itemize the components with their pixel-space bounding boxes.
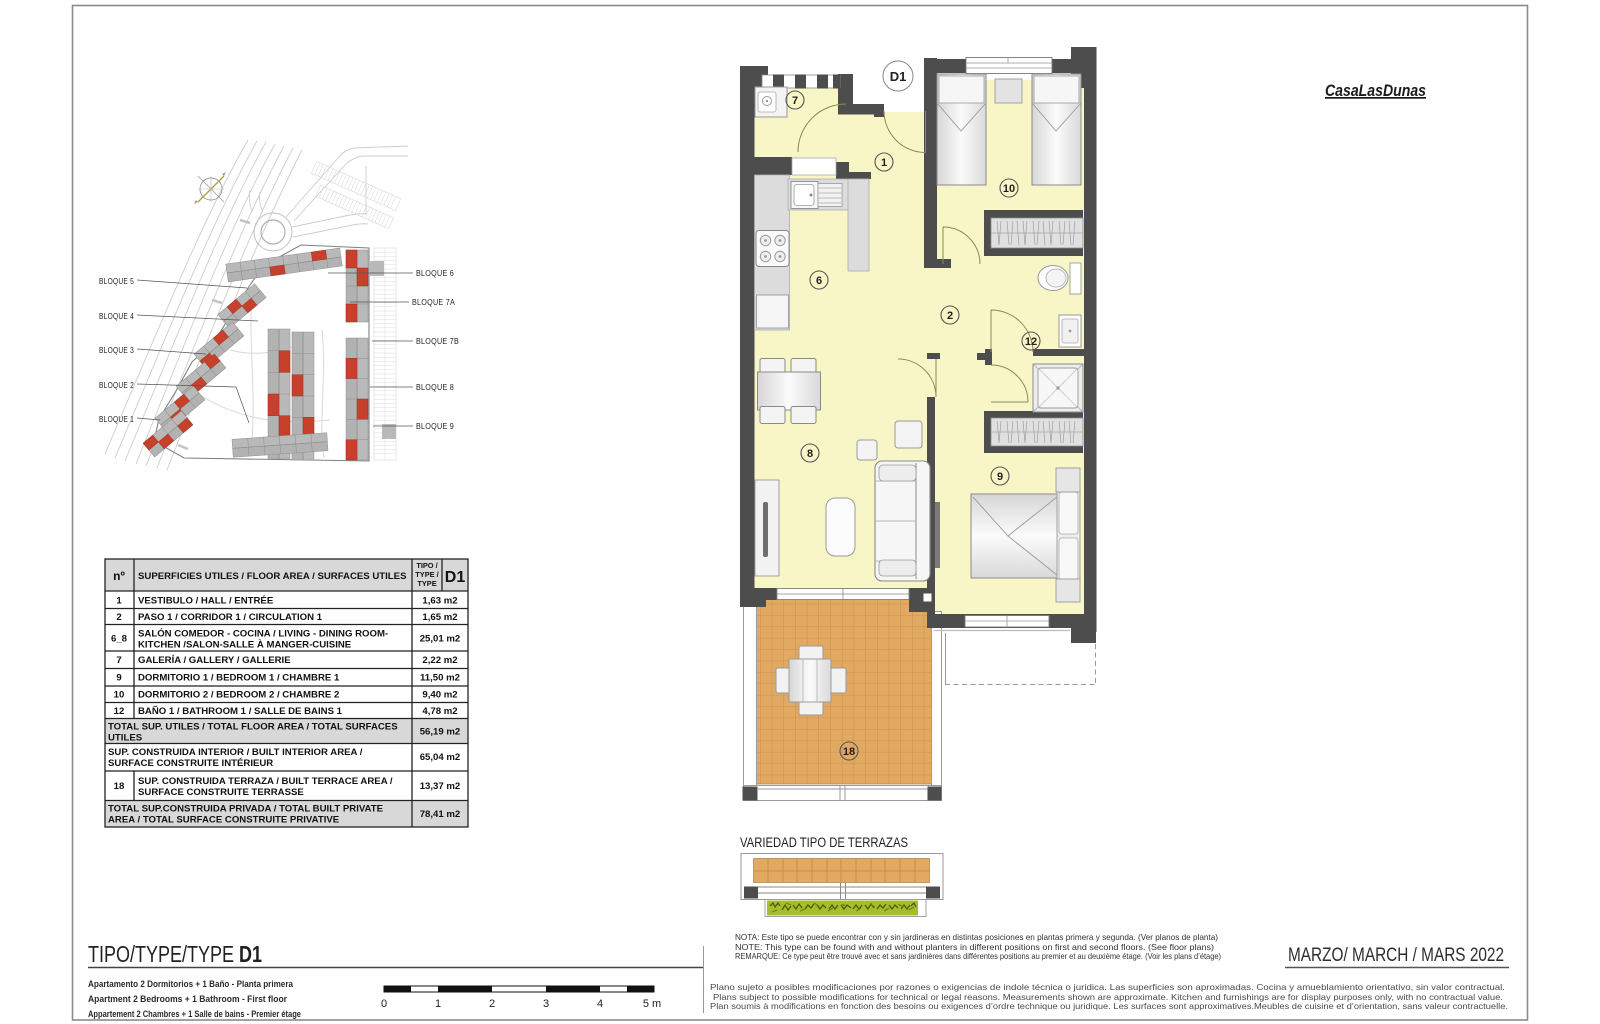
svg-text:GALERÍA / GALLERY / GALLERIE: GALERÍA / GALLERY / GALLERIE [138,654,291,666]
svg-text:5 m: 5 m [643,998,661,1010]
svg-text:SUP. CONSTRUIDA INTERIOR / BUI: SUP. CONSTRUIDA INTERIOR / BUILT INTERIO… [108,747,363,758]
svg-text:10: 10 [114,690,125,701]
svg-text:7: 7 [792,95,798,107]
svg-text:VARIEDAD TIPO DE TERRAZAS: VARIEDAD TIPO DE TERRAZAS [740,835,908,850]
svg-text:TOTAL SUP.CONSTRUIDA PRIVADA /: TOTAL SUP.CONSTRUIDA PRIVADA / TOTAL BUI… [108,804,384,815]
svg-text:BLOQUE 4: BLOQUE 4 [99,311,134,321]
svg-text:BLOQUE 7A: BLOQUE 7A [412,297,455,307]
svg-text:BLOQUE 7B: BLOQUE 7B [416,336,459,346]
svg-text:DORMITORIO 1 / BEDROOM 1 / CHA: DORMITORIO 1 / BEDROOM 1 / CHAMBRE 1 [138,673,340,684]
svg-text:9,40 m2: 9,40 m2 [422,690,457,701]
svg-text:1,65 m2: 1,65 m2 [422,612,457,623]
svg-text:TIPO/TYPE/TYPE D1: TIPO/TYPE/TYPE D1 [88,941,262,967]
svg-text:Plans subject to possible modi: Plans subject to possible modifications … [713,993,1503,1002]
svg-text:Plan soumis à modifications en: Plan soumis à modifications en fonction … [710,1002,1508,1011]
svg-text:BLOQUE 9: BLOQUE 9 [416,421,454,431]
svg-text:4: 4 [597,998,603,1010]
svg-text:1: 1 [435,998,441,1010]
svg-text:MARZO/ MARCH / MARS 2022: MARZO/ MARCH / MARS 2022 [1288,945,1504,966]
svg-text:11,50 m2: 11,50 m2 [420,673,460,684]
svg-text:8: 8 [807,448,813,460]
svg-text:SURFACE CONSTRUITE TERRASSE: SURFACE CONSTRUITE TERRASSE [138,787,304,798]
svg-text:SUPERFICIES UTILES / FLOOR ARE: SUPERFICIES UTILES / FLOOR AREA / SURFAC… [138,571,407,582]
svg-text:KITCHEN /SALON-SALLE À MANGER-: KITCHEN /SALON-SALLE À MANGER-CUISINE [138,639,352,651]
svg-text:1: 1 [881,157,887,169]
svg-text:TYPE /: TYPE / [415,570,438,579]
svg-text:9: 9 [997,471,1003,483]
svg-text:0: 0 [381,998,387,1010]
svg-text:9: 9 [116,673,121,684]
svg-text:2: 2 [947,310,953,322]
svg-text:BLOQUE 1: BLOQUE 1 [99,414,134,424]
svg-text:10: 10 [1003,183,1015,195]
svg-text:UTILES: UTILES [108,733,143,744]
svg-text:D1: D1 [445,569,466,586]
svg-text:25,01 m2: 25,01 m2 [420,634,461,645]
svg-text:Apartamento 2 Dormitorios + 1: Apartamento 2 Dormitorios + 1 Baño - Pla… [88,979,294,990]
svg-text:2: 2 [489,998,495,1010]
svg-text:Appartement 2 Chambres + 1 Sal: Appartement 2 Chambres + 1 Salle de bain… [88,1009,301,1020]
svg-text:12: 12 [114,706,125,717]
svg-text:65,04 m2: 65,04 m2 [420,752,461,763]
svg-text:TOTAL SUP. UTILES / TOTAL FLOO: TOTAL SUP. UTILES / TOTAL FLOOR AREA / T… [108,722,398,733]
svg-text:CasaLasDunas: CasaLasDunas [1325,81,1426,100]
svg-text:6_8: 6_8 [111,634,128,645]
svg-text:VESTIBULO / HALL / ENTRÉE: VESTIBULO / HALL / ENTRÉE [138,595,274,607]
svg-text:2: 2 [116,612,121,623]
svg-text:13,37 m2: 13,37 m2 [420,781,461,792]
svg-text:PASO 1 / CORRIDOR 1 / CIRCULAT: PASO 1 / CORRIDOR 1 / CIRCULATION 1 [138,612,323,623]
svg-text:AREA / TOTAL SURFACE CONSTRUIT: AREA / TOTAL SURFACE CONSTRUITE PRIVATIV… [108,815,340,826]
svg-text:SURFACE CONSTRUITE INTÉRIEUR: SURFACE CONSTRUITE INTÉRIEUR [108,757,273,769]
svg-text:18: 18 [114,781,125,792]
svg-text:Plano sujeto a posibles modifi: Plano sujeto a posibles modificaciones p… [710,983,1505,992]
svg-text:56,19 m2: 56,19 m2 [420,727,461,738]
svg-text:6: 6 [816,275,822,287]
svg-text:REMARQUE: Ce type peut être tr: REMARQUE: Ce type peut être trouvé avec … [735,951,1221,961]
svg-text:3: 3 [543,998,549,1010]
svg-text:7: 7 [116,655,121,666]
svg-text:DORMITORIO 2 / BEDROOM 2 / CHA: DORMITORIO 2 / BEDROOM 2 / CHAMBRE 2 [138,690,339,701]
svg-text:TYPE: TYPE [417,579,436,588]
svg-text:SUP. CONSTRUIDA TERRAZA / BUIL: SUP. CONSTRUIDA TERRAZA / BUILT TERRACE … [138,776,393,787]
svg-text:12: 12 [1025,336,1037,348]
svg-text:78,41 m2: 78,41 m2 [420,809,461,820]
svg-text:1: 1 [116,596,122,607]
svg-text:4,78 m2: 4,78 m2 [422,706,457,717]
svg-text:1,63 m2: 1,63 m2 [422,596,457,607]
svg-text:NOTA: Este tipo se puede encon: NOTA: Este tipo se puede encontrar con y… [735,932,1218,942]
svg-text:nº: nº [113,569,125,583]
svg-text:18: 18 [843,746,855,758]
svg-text:BLOQUE 6: BLOQUE 6 [416,268,454,278]
svg-text:Apartment 2 Bedrooms + 1 Bathr: Apartment 2 Bedrooms + 1 Bathroom - Firs… [88,994,287,1005]
svg-text:D1: D1 [890,69,907,84]
svg-text:BLOQUE 5: BLOQUE 5 [99,276,134,286]
svg-text:BLOQUE 3: BLOQUE 3 [99,345,134,355]
svg-text:2,22 m2: 2,22 m2 [422,655,457,666]
svg-text:BAÑO 1 / BATHROOM 1 / SALLE DE: BAÑO 1 / BATHROOM 1 / SALLE DE BAINS 1 [138,706,343,717]
svg-text:BLOQUE 8: BLOQUE 8 [416,382,454,392]
svg-text:SALÓN COMEDOR - COCINA / LIVIN: SALÓN COMEDOR - COCINA / LIVING - DINING… [138,628,388,640]
svg-text:TIPO /: TIPO / [416,561,437,570]
svg-text:BLOQUE 2: BLOQUE 2 [99,380,134,390]
